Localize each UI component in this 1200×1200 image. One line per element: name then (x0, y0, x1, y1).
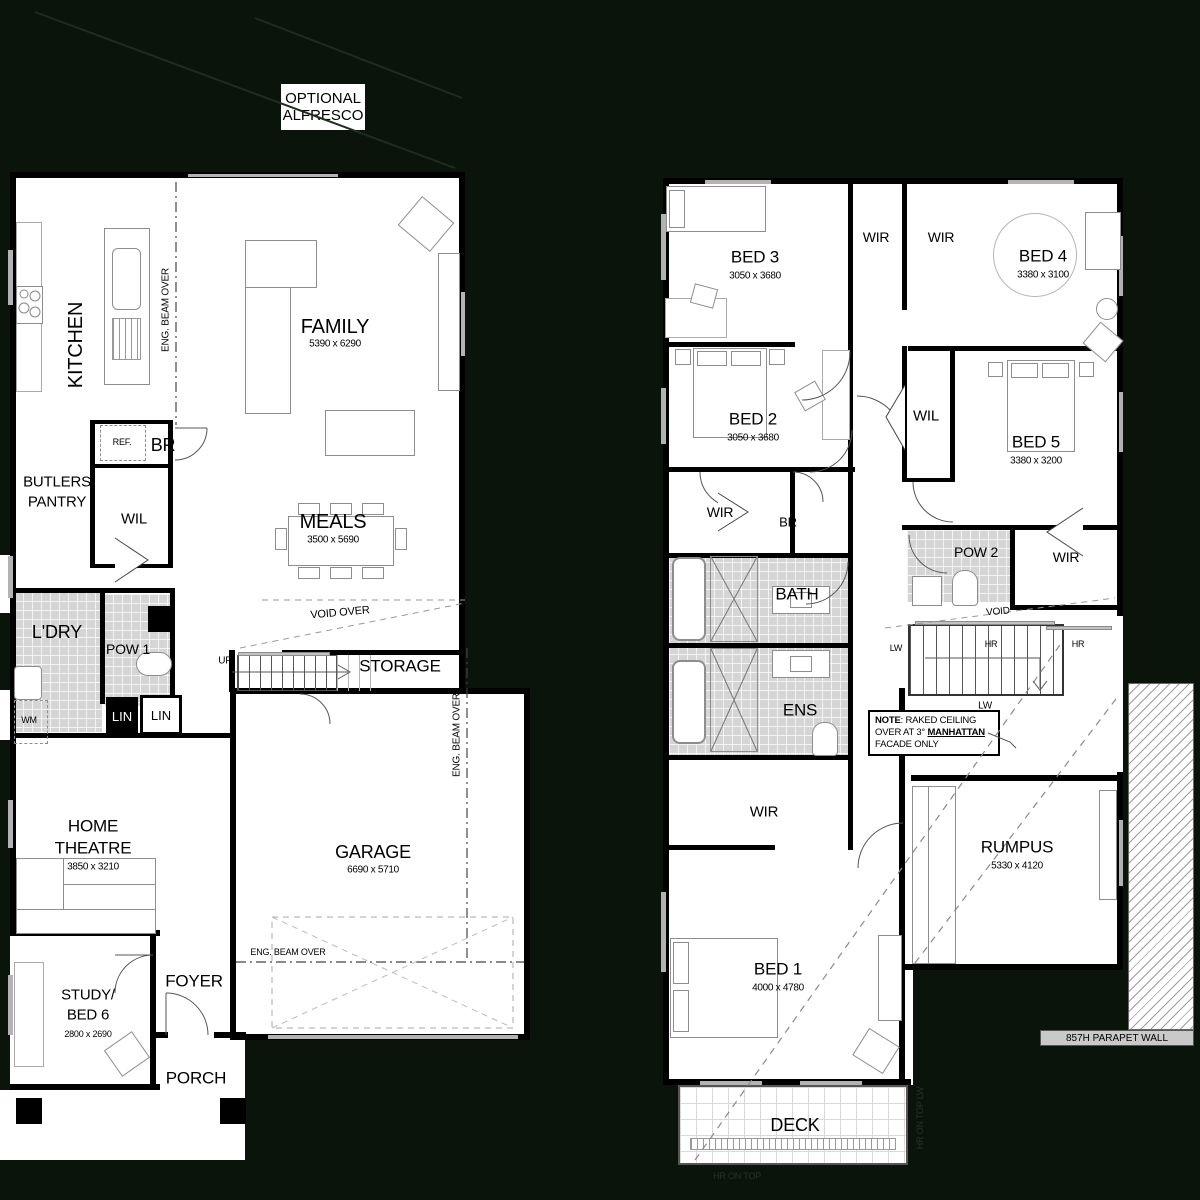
basin (790, 656, 812, 672)
dish-rack (112, 318, 141, 360)
window (700, 1081, 762, 1085)
lw-label: LW (890, 643, 902, 653)
linen-label: LIN (151, 708, 171, 723)
window (661, 388, 666, 444)
room-label-br: BR (779, 516, 797, 531)
eng-beam-label: ENG. BEAM OVER (451, 693, 462, 777)
staircase (908, 624, 1064, 696)
wall (459, 172, 465, 692)
wall (1010, 525, 1015, 610)
garage-door (268, 1035, 518, 1039)
room-label-bed5: BED 5 (1012, 432, 1060, 451)
note-text: FACADE ONLY (875, 739, 939, 750)
pillow (731, 351, 761, 366)
raked-ceiling-note: NOTE: RAKED CEILING OVER AT 3° MANHATTAN… (868, 710, 1000, 756)
wardrobe (878, 935, 902, 1021)
tv-unit (1099, 790, 1117, 900)
wall (524, 688, 530, 1040)
sliding-door (188, 174, 338, 177)
note-bold-underline: MANHATTAN (927, 727, 984, 738)
room-label-bed1: BED 1 (754, 959, 802, 978)
parapet-strip: 857H PARAPET WALL (1040, 1030, 1194, 1046)
room-label-wir: WIR (928, 230, 955, 246)
bed (1085, 212, 1121, 270)
dining-chair (395, 528, 407, 550)
pillow (1011, 363, 1038, 378)
wall (905, 964, 1123, 970)
window (8, 975, 13, 1035)
sofa-seat (928, 786, 956, 964)
laundry-tub (14, 666, 42, 700)
hr-label: HR (1072, 639, 1085, 649)
wall (90, 464, 173, 468)
front-door-opening (168, 1032, 214, 1038)
room-label-wil: WIL (121, 512, 147, 529)
roof-line (35, 12, 455, 168)
toilet (812, 722, 838, 756)
wall (90, 420, 173, 424)
room-label-study-2: BED 6 (67, 1008, 109, 1025)
room-label-bath: BATH (775, 584, 818, 603)
sofa (325, 410, 415, 456)
toilet (952, 570, 978, 606)
bedside-table (988, 362, 1003, 377)
staircase (237, 655, 337, 691)
wall (100, 592, 105, 704)
room-label-wir: WIR (863, 230, 890, 246)
pillow (673, 942, 689, 984)
room-label-bed4: BED 4 (1019, 246, 1067, 265)
room-dims-garage: 6690 x 5710 (347, 864, 399, 875)
eng-beam-label: ENG. BEAM OVER (250, 947, 325, 957)
deck-rail-label: HR ON TOP (713, 1171, 761, 1181)
room-label-foyer: FOYER (165, 971, 223, 990)
room-dims-rumpus: 5330 x 4120 (991, 860, 1043, 871)
theatre-sofa-arm (16, 858, 64, 910)
room-label-theatre-2: THEATRE (55, 838, 132, 857)
up-label: UP (218, 655, 232, 666)
deck-boards (690, 1138, 896, 1150)
tv-unit (438, 253, 460, 391)
dining-chair (298, 567, 320, 579)
hr-label: HR (985, 639, 998, 649)
deck-label: DECK (770, 1115, 819, 1135)
wall (90, 564, 173, 568)
room-label-wir: WIR (750, 805, 779, 822)
room-dims-bed3: 3050 x 3680 (729, 270, 781, 281)
room-dims-family: 5390 x 6290 (309, 338, 361, 349)
bedside-table (769, 349, 785, 365)
room-label-garage: GARAGE (335, 842, 411, 862)
shower (710, 556, 758, 642)
optional-alfresco-label: OPTIONAL ALFRESCO (281, 84, 365, 130)
wall (793, 467, 855, 472)
room-label-porch: PORCH (166, 1068, 226, 1087)
cooktop (16, 286, 43, 324)
room-label-wir: WIR (707, 505, 734, 521)
window (1119, 820, 1123, 886)
wall (848, 755, 853, 850)
desk (822, 350, 850, 440)
window (461, 292, 465, 356)
wall (902, 346, 907, 482)
bathtub (672, 660, 706, 744)
room-dims-meals: 3500 x 5690 (307, 534, 359, 545)
room-dims-bed2: 3050 x 3680 (727, 432, 779, 443)
wall (90, 420, 95, 568)
window (705, 180, 771, 184)
room-label-pow1: POW 1 (106, 642, 150, 658)
wall (663, 845, 775, 850)
stair-handrail (1046, 626, 1112, 630)
wall (848, 664, 853, 760)
room-label-kitchen: KITCHEN (65, 302, 87, 388)
fridge-label: REF. (113, 437, 132, 447)
wall (10, 1084, 160, 1090)
void-label: VOID (986, 605, 1011, 618)
lw-label: LW (978, 700, 992, 711)
wall (911, 775, 1123, 781)
dining-chair (330, 567, 352, 579)
room-label-ldry: L'DRY (32, 622, 82, 642)
note-text: OVER AT 3° (875, 727, 927, 738)
window (8, 556, 13, 598)
wall (902, 184, 907, 310)
shower (710, 648, 758, 752)
room-label-wil: WIL (913, 409, 939, 426)
room-label-bed2: BED 2 (729, 409, 777, 428)
floor-plan-canvas: 857H PARAPET WALL LIN LIN (0, 0, 1200, 1200)
parapet-label: 857H PARAPET WALL (1066, 1033, 1168, 1044)
vanity (912, 576, 942, 606)
powder1-basin (148, 606, 174, 632)
window (1119, 392, 1123, 452)
room-label-rumpus: RUMPUS (981, 837, 1053, 856)
wall (790, 472, 795, 553)
dining-chair (362, 567, 384, 579)
porch-post (16, 1098, 42, 1124)
window (8, 800, 13, 848)
room-label-study-1: STUDY/ (61, 988, 115, 1005)
stair-handrail (238, 652, 330, 656)
room-label-pow2: POW 2 (954, 545, 998, 561)
wall (663, 643, 853, 648)
wall (150, 930, 156, 1090)
room-label-wir: WIR (1053, 550, 1080, 566)
note-text: : RAKED CEILING (901, 715, 977, 726)
alfresco-line1: OPTIONAL (285, 90, 361, 107)
room-label-ens: ENS (783, 700, 817, 719)
wall (902, 478, 955, 482)
sofa-chaise (245, 240, 317, 288)
wall (1012, 605, 1123, 610)
pillow (1042, 363, 1069, 378)
room-label-meals: MEALS (300, 511, 367, 533)
kitchen-sink (112, 248, 141, 310)
bathtub (672, 557, 706, 641)
linen-label: LIN (112, 709, 132, 724)
wall (950, 346, 955, 482)
room-label-bed3: BED 3 (731, 247, 779, 266)
room-label-theatre-1: HOME (68, 816, 118, 835)
room-label-butlers-1: BUTLERS (23, 475, 91, 492)
room-label-family: FAMILY (301, 316, 369, 338)
pillow (697, 351, 727, 366)
window (800, 1081, 862, 1085)
room-dims-bed5: 3380 x 3200 (1010, 455, 1062, 466)
side-table-round (1096, 298, 1118, 320)
wall (230, 688, 236, 1040)
dining-chair (275, 528, 287, 550)
wall (10, 588, 175, 593)
room-dims-bed4: 3380 x 3100 (1017, 269, 1069, 280)
note-bold: NOTE (875, 715, 901, 726)
pillow (669, 190, 685, 228)
wm-label: WM (21, 715, 37, 725)
eng-beam-label: ENG. BEAM OVER (160, 268, 171, 352)
window (1008, 180, 1074, 184)
deck-rail-side-label: HR ON TOP LW (915, 1087, 925, 1149)
room-label-storage: STORAGE (359, 656, 440, 675)
room-label-br: BR (151, 435, 176, 455)
room-dims-bed1: 4000 x 4780 (752, 982, 804, 993)
bedside-table (675, 349, 691, 365)
linen-cupboard: LIN (140, 695, 182, 735)
bedside-table (1079, 362, 1094, 377)
balcony-hatch (1128, 683, 1194, 1030)
pillow (673, 990, 689, 1032)
window (661, 892, 666, 972)
stair-handrail (915, 621, 1055, 625)
room-dims-study: 2800 x 2690 (64, 1029, 111, 1039)
alfresco-line2: ALFRESCO (283, 107, 364, 124)
wall (663, 342, 795, 347)
window (8, 250, 13, 305)
room-label-butlers-2: PANTRY (28, 495, 86, 512)
study-desk (14, 962, 44, 1067)
linen-cupboard: LIN (106, 697, 138, 735)
room-dims-theatre: 3850 x 3210 (67, 861, 119, 872)
porch-post (220, 1098, 246, 1124)
wall (663, 467, 795, 472)
